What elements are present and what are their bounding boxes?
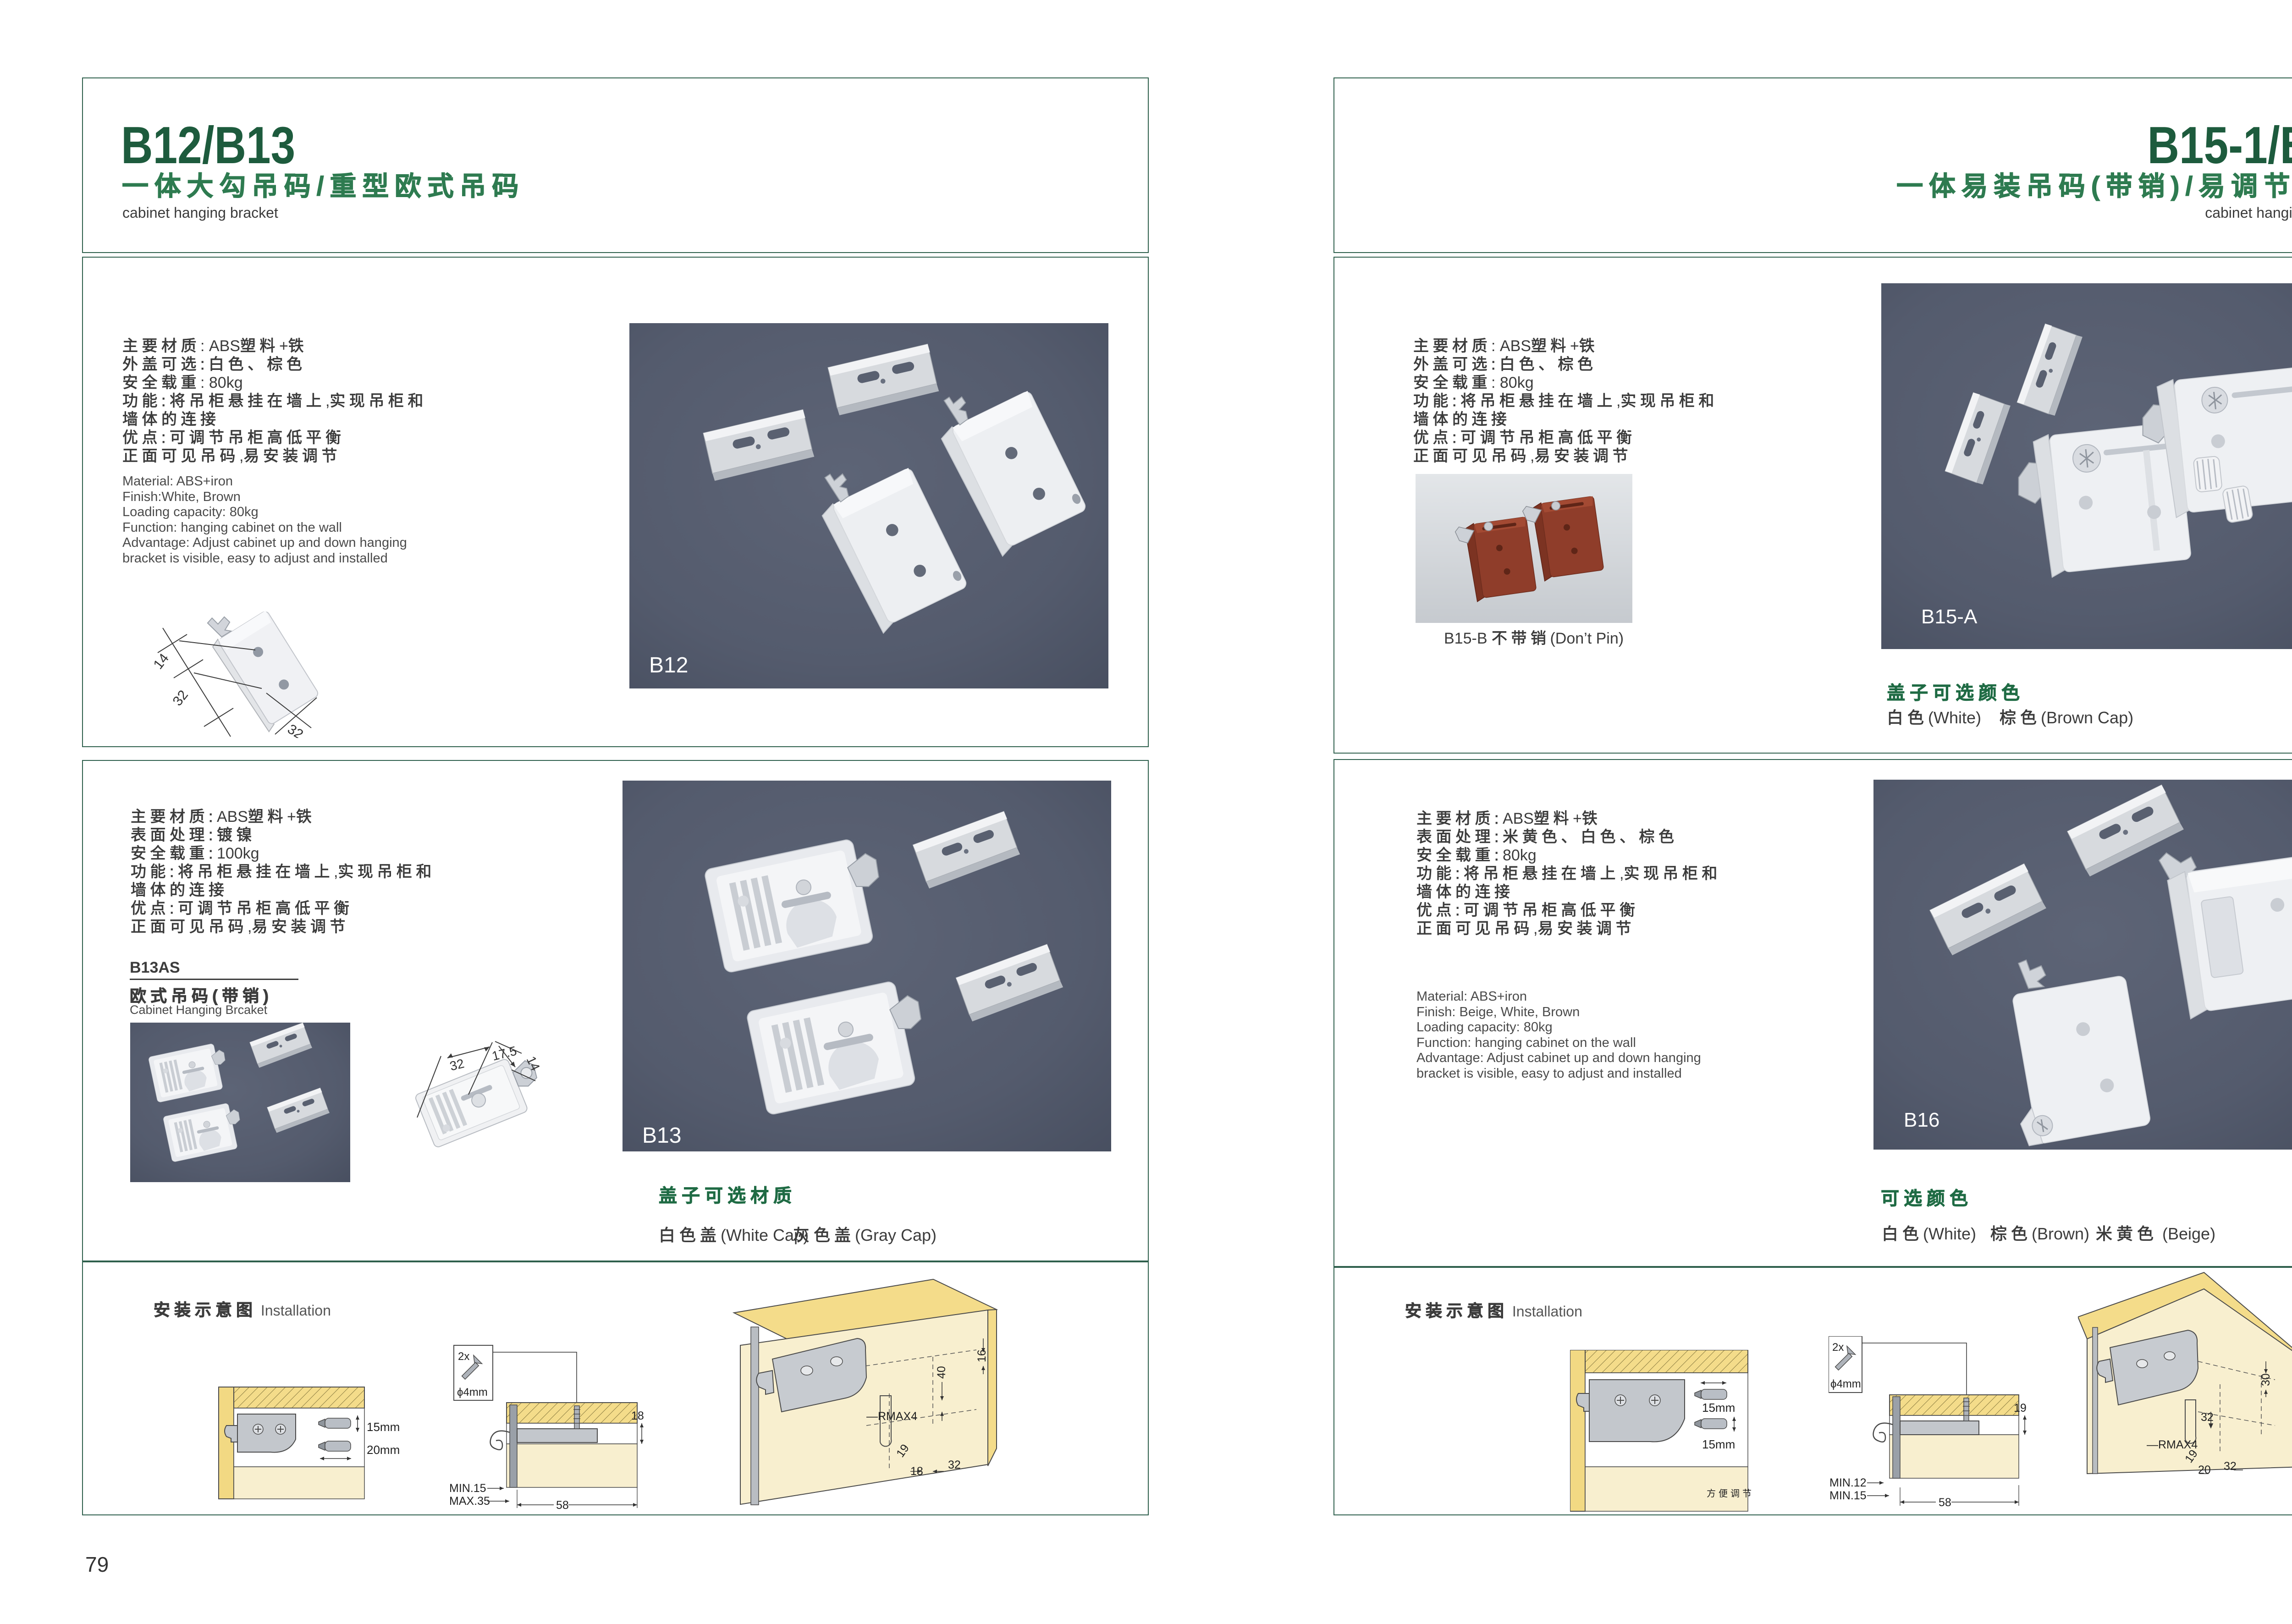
svg-text:15mm: 15mm	[1702, 1437, 1735, 1451]
svg-text:B16: B16	[1904, 1109, 1939, 1131]
svg-text:MIN.12: MIN.12	[1829, 1476, 1867, 1489]
svg-text:16: 16	[975, 1349, 988, 1362]
svg-text:15mm: 15mm	[1702, 1401, 1735, 1415]
svg-text:40: 40	[935, 1366, 948, 1379]
svg-text:20: 20	[2198, 1464, 2211, 1476]
svg-text:ϕ4mm: ϕ4mm	[1830, 1378, 1861, 1390]
svg-text:17.5: 17.5	[490, 1044, 518, 1063]
svg-text:方便调节: 方便调节	[1707, 1488, 1754, 1499]
svg-text:32: 32	[285, 721, 306, 738]
svg-text:ϕ4mm: ϕ4mm	[457, 1386, 488, 1398]
svg-text:15mm: 15mm	[367, 1420, 400, 1434]
svg-text:58: 58	[1939, 1496, 1951, 1509]
svg-text:30: 30	[2259, 1373, 2272, 1386]
svg-text:B13: B13	[642, 1123, 681, 1148]
svg-text:B12: B12	[649, 653, 688, 677]
svg-text:19: 19	[2014, 1402, 2027, 1415]
svg-text:MAX.35: MAX.35	[449, 1495, 490, 1508]
svg-text:14: 14	[151, 651, 172, 672]
svg-text:20mm: 20mm	[367, 1443, 400, 1457]
svg-text:MIN.15: MIN.15	[1829, 1489, 1867, 1502]
svg-text:2x: 2x	[1832, 1341, 1844, 1354]
svg-text:32: 32	[170, 688, 192, 709]
svg-text:32: 32	[2201, 1411, 2214, 1424]
svg-text:—RMAX4: —RMAX4	[866, 1410, 917, 1423]
svg-text:32: 32	[948, 1459, 961, 1471]
svg-text:32: 32	[448, 1056, 466, 1073]
svg-text:2x: 2x	[458, 1350, 469, 1363]
svg-text:58: 58	[556, 1499, 569, 1512]
svg-text:MIN.15: MIN.15	[449, 1482, 486, 1495]
svg-text:32: 32	[2224, 1460, 2237, 1473]
svg-text:B15-A: B15-A	[1921, 606, 1978, 628]
svg-text:18: 18	[631, 1409, 644, 1422]
